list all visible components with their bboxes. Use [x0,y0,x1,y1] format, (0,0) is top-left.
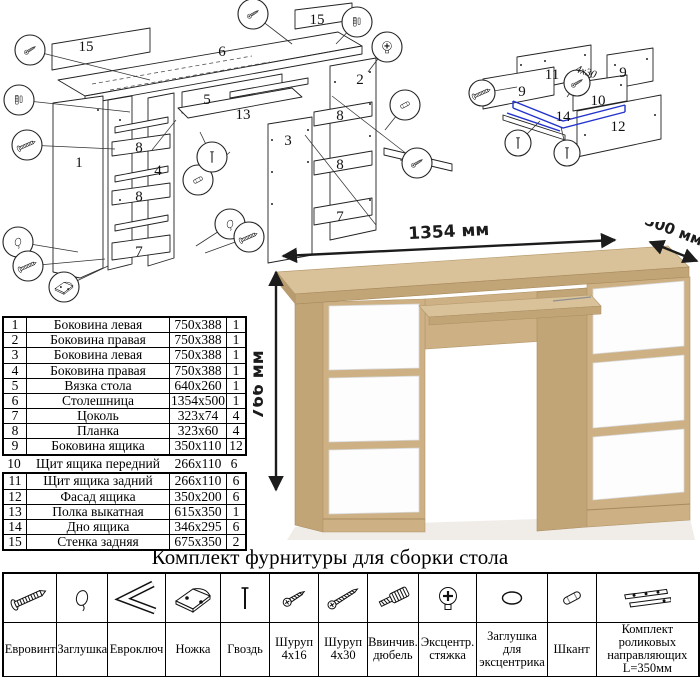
dowel-screw-icon [369,575,417,621]
part-number: 12 [3,489,27,504]
hardware-item-name: Заглушка [57,623,108,677]
hardware-item-name: Евроключ [108,623,166,677]
hardware-item-name: Шуруп 4x16 [270,623,319,677]
parts-table-row: 4 Боковина правая 750x388 1 [3,363,246,378]
part-qty: 1 [227,393,247,408]
part-qty: 6 [227,519,247,534]
screw-large-icon [319,575,367,621]
part-number-label: 6 [218,44,226,60]
part-number-label: 2 [356,72,364,88]
depth-dimension-label: 500 мм [642,222,700,250]
part-number-label: 9 [518,84,526,100]
parts-table-row: 9 Боковина ящика 350x110 12 [3,439,246,455]
hardware-names-row: ЕвровинтЗаглушкаЕвроключНожкаГвоздьШуруп… [3,623,699,677]
part-qty: 1 [227,333,247,348]
hardware-item-name: Заглушка для эксцентрика [477,623,547,677]
hardware-icon-cell [165,573,220,623]
parts-table-row: 14 Дно ящика 346x295 6 [3,519,246,534]
height-dimension-label: 766 мм [253,350,268,419]
hardware-item-name: Шкант [547,623,596,677]
part-size: 750x388 [170,363,227,378]
euroscrew-icon [6,575,54,621]
parts-table-row: 7 Цоколь 323x74 4 [3,409,246,424]
callout-circle [4,85,34,115]
width-dimension-label: 1354 мм [408,222,490,244]
parts-table-bottom: 11 Щит ящика задний 266x110 612 Фасад ящ… [2,472,247,551]
part-number-label: 13 [236,107,251,123]
hardware-icon-cell [547,573,596,623]
hardware-icon-cell [368,573,419,623]
part-number-label: 8 [135,140,143,156]
part-number-label: 5 [203,92,211,108]
hardware-icon-cell [596,573,699,623]
part-number: 5 [3,378,27,393]
nail-icon [221,575,269,621]
part-size: 350x200 [170,489,227,504]
parts-table-row: 8 Планка 323x60 4 [3,424,246,439]
part-number-label: 9 [619,65,627,81]
hardware-icon-cell [418,573,477,623]
wood-dowel-icon [548,575,596,621]
part-name: Фасад ящика [27,489,170,504]
hardware-item-name: Ножка [165,623,220,677]
part-name: Щит ящика передний [26,457,170,472]
hardware-icon-cell [108,573,166,623]
cam-lock-icon [424,575,472,621]
part-number: 8 [3,424,27,439]
part-size: 323x74 [170,409,227,424]
hardware-icon-cell [221,573,270,623]
part-name: Дно ящика [27,519,170,534]
part-qty: 1 [227,317,247,333]
hardware-item-name: Шуруп 4x30 [319,623,368,677]
hardware-item-name: Евровинт [3,623,57,677]
part-number: 7 [3,409,27,424]
part-number-label: 8 [336,108,344,124]
part-size: 615x350 [170,504,227,519]
part-name: Боковина правая [27,363,170,378]
part-size: 750x388 [170,333,227,348]
parts-table-row: 11 Щит ящика задний 266x110 6 [3,473,246,489]
hexkey-icon [113,575,161,621]
part-name: Боковина ящика [27,439,170,455]
part-size: 266x110 [170,457,226,472]
part-number-label: 11 [545,67,559,83]
callout-circle [342,7,372,37]
part-number-label: 15 [79,39,94,55]
part-number-label: 4 [154,163,162,179]
part-size: 323x60 [170,424,227,439]
parts-table-row: 5 Вязка стола 640x260 1 [3,378,246,393]
cam-cap-icon [488,575,536,621]
drawer-exploded-diagram: 1199101412 4x30 [455,35,700,190]
parts-table-row: 2 Боковина правая 750x388 1 [3,333,246,348]
parts-table-row: 12 Фасад ящика 350x200 6 [3,489,246,504]
drawer-slides-icon [623,575,671,621]
part-number: 1 [3,317,27,333]
parts-table-row: 3 Боковина левая 750x388 1 [3,348,246,363]
hardware-icons-row [3,573,699,623]
part-size: 266x110 [170,473,227,489]
part-qty: 6 [227,473,247,489]
part-name: Столешница [27,393,170,408]
part-size: 346x295 [170,519,227,534]
hardware-item-name: Эксцентр. стяжка [418,623,477,677]
hardware-item-name: Комплект роликовых направляющих L=350мм [596,623,699,677]
part-name: Боковина левая [27,317,170,333]
parts-list: 1 Боковина левая 750x388 12 Боковина пра… [2,316,240,551]
desk-render: 1354 мм 500 мм 766 мм [253,222,700,544]
part-name: Цоколь [27,409,170,424]
part-qty: 1 [227,348,247,363]
part-qty: 4 [227,424,247,439]
parts-row-10: 10 Щит ящика передний 266x110 6 [2,456,240,473]
part-qty: 6 [227,489,247,504]
part-number-label: 3 [284,133,292,149]
part-number: 10 [2,457,26,472]
part-qty: 1 [227,504,247,519]
part-number: 14 [3,519,27,534]
hardware-icon-cell [477,573,547,623]
part-number-label: 1 [75,155,83,171]
part-number: 6 [3,393,27,408]
hardware-icon-cell [3,573,57,623]
parts-table-row: 13 Полка выкатная 615x350 1 [3,504,246,519]
parts-table-row: 1 Боковина левая 750x388 1 [3,317,246,333]
part-name: Вязка стола [27,378,170,393]
hardware-kit-title: Комплект фурнитуры для сборки стола [0,545,660,570]
part-qty: 12 [227,439,247,455]
part-size: 750x388 [170,317,227,333]
part-size: 350x110 [170,439,227,455]
cap-icon [58,575,106,621]
assembly-instruction-sheet: 156155132314888877 [0,0,700,677]
part-number: 13 [3,504,27,519]
part-number-label: 7 [135,244,143,260]
part-number-label: 12 [611,119,626,135]
part-size: 640x260 [170,378,227,393]
part-qty: 4 [227,409,247,424]
part-name: Полка выкатная [27,504,170,519]
part-number-label: 14 [556,109,572,125]
hardware-icon-cell [319,573,368,623]
part-number: 9 [3,439,27,455]
part-qty: 1 [227,378,247,393]
part-size: 750x388 [170,348,227,363]
hardware-item-name: Гвоздь [221,623,270,677]
part-name: Планка [27,424,170,439]
part-name: Боковина левая [27,348,170,363]
part-number-label: 15 [310,12,325,28]
part-number-label: 8 [135,189,143,205]
part-qty: 6 [226,457,242,472]
part-number: 11 [3,473,27,489]
part-name: Щит ящика задний [27,473,170,489]
part-size: 1354x500 [170,393,227,408]
parts-table-row: 6 Столешница 1354x500 1 [3,393,246,408]
part-number: 2 [3,333,27,348]
part-qty: 1 [227,363,247,378]
hardware-item-name: Ввинчив. дюбель [368,623,419,677]
foot-icon [169,575,217,621]
part-number: 3 [3,348,27,363]
screw-small-icon [270,575,318,621]
desk-body [277,246,695,540]
part-number-label: 8 [336,157,344,173]
parts-table-top: 1 Боковина левая 750x388 12 Боковина пра… [2,316,247,456]
hardware-icon-cell [57,573,108,623]
part-number: 4 [3,363,27,378]
hardware-icon-cell [270,573,319,623]
part-name: Боковина правая [27,333,170,348]
hardware-kit-table: ЕвровинтЗаглушкаЕвроключНожкаГвоздьШуруп… [2,572,700,677]
part-number-label: 10 [591,93,606,109]
